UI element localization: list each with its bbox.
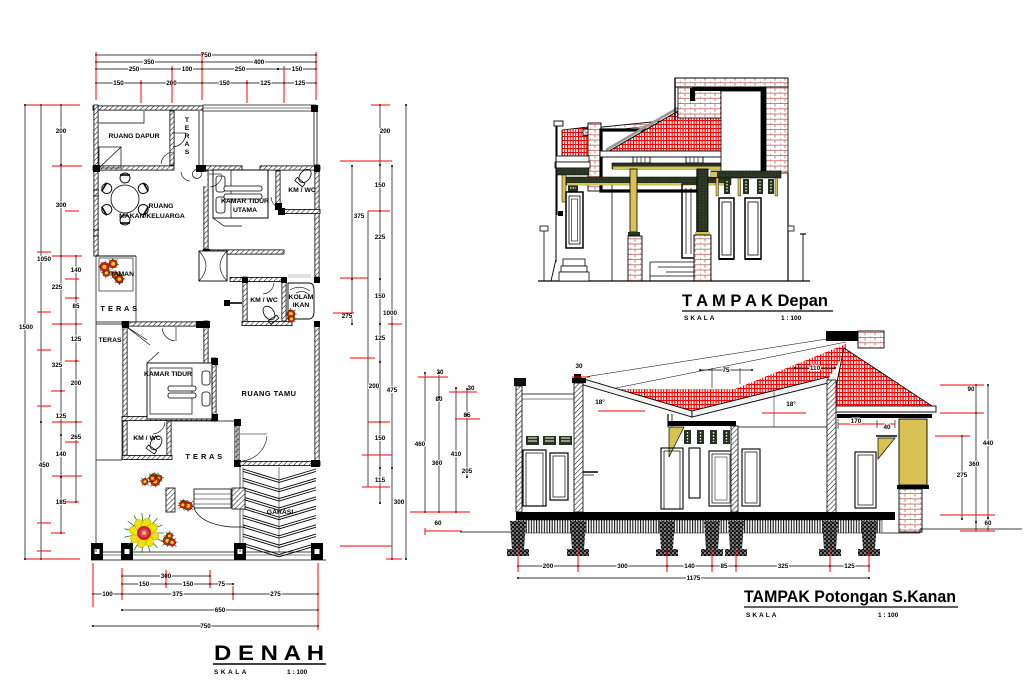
svg-text:T E R A S: T E R A S xyxy=(100,304,137,313)
svg-text:200: 200 xyxy=(56,128,67,135)
svg-text:375: 375 xyxy=(354,213,365,220)
svg-text:1000: 1000 xyxy=(383,310,398,317)
svg-text:85: 85 xyxy=(72,303,80,310)
svg-text:KM / WC: KM / WC xyxy=(288,187,316,194)
svg-text:250: 250 xyxy=(129,66,140,73)
svg-text:300: 300 xyxy=(56,202,67,209)
svg-text:460: 460 xyxy=(415,441,426,448)
svg-text:275: 275 xyxy=(342,313,353,320)
svg-text:D E N A H: D E N A H xyxy=(214,642,324,665)
svg-text:200: 200 xyxy=(369,383,380,390)
svg-text:GARASI: GARASI xyxy=(267,509,294,516)
svg-text:125: 125 xyxy=(260,80,271,87)
svg-text:RUANG: RUANG xyxy=(149,203,174,210)
svg-text:225: 225 xyxy=(375,234,386,241)
svg-text:200: 200 xyxy=(543,563,554,570)
svg-text:1175: 1175 xyxy=(687,575,701,582)
svg-text:140: 140 xyxy=(684,563,695,570)
svg-text:325: 325 xyxy=(778,563,789,570)
svg-text:150: 150 xyxy=(183,581,194,588)
svg-text:IKAN: IKAN xyxy=(293,302,310,309)
svg-text:30: 30 xyxy=(436,369,444,376)
svg-text:KAMAR TIDUR: KAMAR TIDUR xyxy=(144,371,192,378)
svg-text:TAMAN: TAMAN xyxy=(110,271,134,278)
svg-text:UTAMA: UTAMA xyxy=(233,207,257,214)
svg-text:200: 200 xyxy=(380,128,391,135)
svg-text:350: 350 xyxy=(144,59,155,66)
svg-text:75: 75 xyxy=(218,581,226,588)
svg-text:1 : 100: 1 : 100 xyxy=(781,315,802,322)
svg-text:375: 375 xyxy=(172,591,183,598)
svg-text:360: 360 xyxy=(432,460,443,467)
svg-text:TERAS: TERAS xyxy=(98,337,122,344)
svg-text:40: 40 xyxy=(883,424,891,431)
svg-text:125: 125 xyxy=(375,335,386,342)
svg-text:265: 265 xyxy=(71,434,82,441)
svg-text:170: 170 xyxy=(851,418,862,425)
svg-text:150: 150 xyxy=(375,435,386,442)
svg-text:185: 185 xyxy=(56,499,67,506)
svg-text:18°: 18° xyxy=(786,400,796,408)
svg-text:75: 75 xyxy=(722,367,730,374)
svg-text:85: 85 xyxy=(720,563,728,570)
svg-text:1 : 100: 1 : 100 xyxy=(878,612,899,619)
svg-text:360: 360 xyxy=(969,461,980,468)
svg-text:110: 110 xyxy=(810,365,821,372)
svg-text:30: 30 xyxy=(467,385,475,392)
svg-text:1500: 1500 xyxy=(19,324,34,331)
svg-text:TAMPAK Potongan S.Kanan: TAMPAK Potongan S.Kanan xyxy=(744,587,956,606)
svg-text:140: 140 xyxy=(56,451,67,458)
svg-text:125: 125 xyxy=(71,336,82,343)
svg-text:410: 410 xyxy=(451,451,462,458)
svg-text:150: 150 xyxy=(375,293,386,300)
svg-text:S: S xyxy=(185,149,190,156)
svg-text:440: 440 xyxy=(983,440,994,447)
svg-text:E: E xyxy=(185,125,190,132)
svg-text:SKALA: SKALA xyxy=(746,612,778,619)
svg-text:400: 400 xyxy=(254,59,265,66)
svg-text:150: 150 xyxy=(375,182,386,189)
svg-text:125: 125 xyxy=(295,80,306,87)
svg-text:T A M P A K Depan: T A M P A K Depan xyxy=(682,291,828,310)
svg-text:275: 275 xyxy=(270,591,281,598)
svg-text:T E R A S: T E R A S xyxy=(185,452,222,461)
svg-text:300: 300 xyxy=(394,499,405,506)
svg-text:SKALA: SKALA xyxy=(214,669,249,676)
svg-text:KM / WC: KM / WC xyxy=(250,297,278,304)
svg-text:450: 450 xyxy=(39,462,50,469)
svg-text:200: 200 xyxy=(71,380,82,387)
svg-text:KAMAR TIDUR: KAMAR TIDUR xyxy=(221,198,269,205)
svg-text:MAKAN/KELUARGA: MAKAN/KELUARGA xyxy=(119,213,185,220)
svg-text:SKALA: SKALA xyxy=(684,315,716,322)
svg-text:150: 150 xyxy=(292,66,303,73)
svg-text:KM / WC: KM / WC xyxy=(133,435,161,442)
svg-text:325: 325 xyxy=(52,362,63,369)
svg-text:115: 115 xyxy=(375,477,386,484)
svg-text:18°: 18° xyxy=(595,398,605,406)
svg-text:225: 225 xyxy=(52,284,63,291)
svg-text:60: 60 xyxy=(984,520,992,527)
svg-text:650: 650 xyxy=(215,607,226,614)
svg-text:A: A xyxy=(185,141,190,148)
svg-text:125: 125 xyxy=(56,413,67,420)
svg-text:RUANG DAPUR: RUANG DAPUR xyxy=(109,133,160,140)
svg-text:275: 275 xyxy=(957,472,968,479)
svg-text:30: 30 xyxy=(575,363,583,370)
svg-text:250: 250 xyxy=(235,66,246,73)
svg-text:RUANG TAMU: RUANG TAMU xyxy=(242,389,297,398)
svg-text:300: 300 xyxy=(617,563,628,570)
svg-text:205: 205 xyxy=(462,468,473,475)
svg-text:475: 475 xyxy=(387,387,398,394)
svg-text:R: R xyxy=(185,133,190,140)
svg-text:150: 150 xyxy=(219,80,230,87)
svg-text:100: 100 xyxy=(182,66,193,73)
svg-text:1 : 100: 1 : 100 xyxy=(287,669,308,676)
svg-text:1050: 1050 xyxy=(37,256,52,263)
svg-text:140: 140 xyxy=(71,267,82,274)
svg-text:150: 150 xyxy=(113,80,124,87)
svg-text:KOLAM: KOLAM xyxy=(289,294,314,301)
svg-text:60: 60 xyxy=(434,520,442,527)
svg-text:750: 750 xyxy=(200,623,211,630)
svg-text:125: 125 xyxy=(844,563,855,570)
svg-text:150: 150 xyxy=(139,581,150,588)
svg-text:90: 90 xyxy=(967,386,975,393)
svg-text:100: 100 xyxy=(102,591,113,598)
